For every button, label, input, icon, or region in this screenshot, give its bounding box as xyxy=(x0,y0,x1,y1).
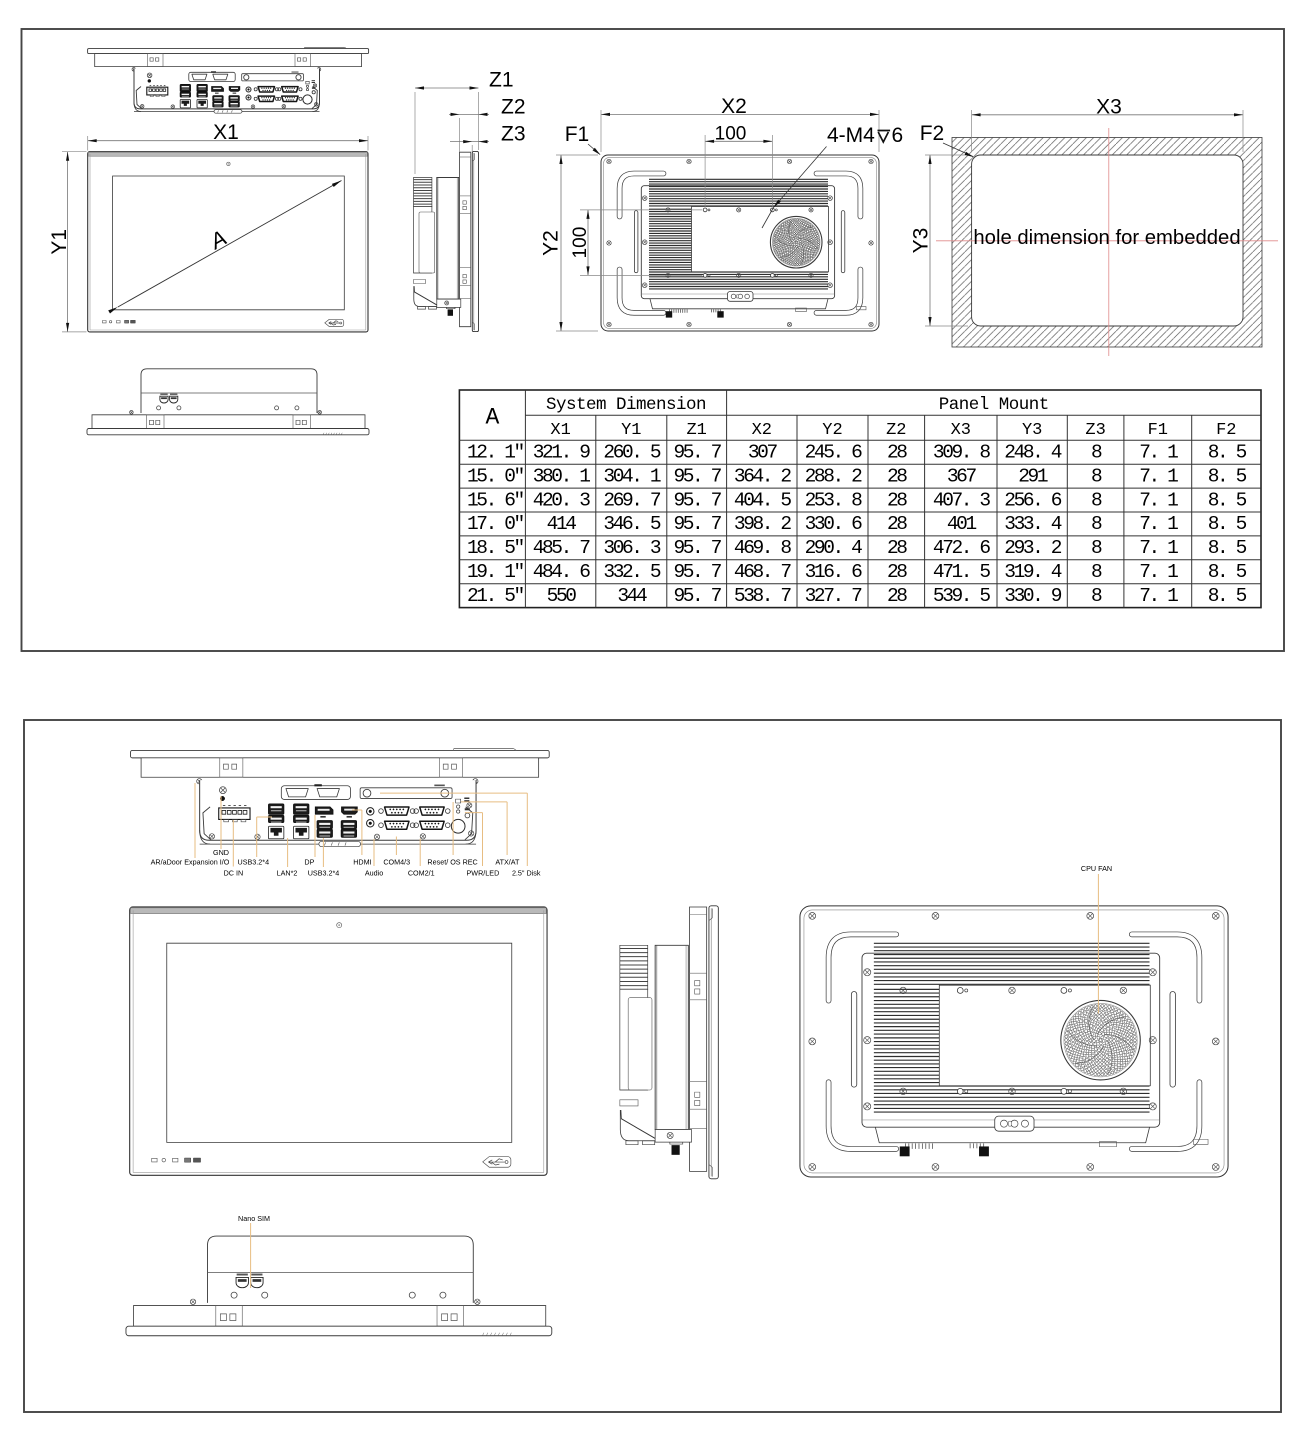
svg-text:256. 6: 256. 6 xyxy=(1004,489,1062,511)
svg-text:COM2/1: COM2/1 xyxy=(408,869,435,878)
svg-text:28: 28 xyxy=(887,489,907,511)
svg-text:28: 28 xyxy=(887,513,907,535)
svg-text:306. 3: 306. 3 xyxy=(603,537,661,559)
svg-text:Nano SIM: Nano SIM xyxy=(238,1214,270,1223)
svg-text:407. 3: 407. 3 xyxy=(933,489,991,511)
svg-text:319. 4: 319. 4 xyxy=(1004,561,1062,583)
svg-text:539. 5: 539. 5 xyxy=(933,585,991,607)
svg-text:15. 6": 15. 6" xyxy=(467,489,524,511)
svg-text:290. 4: 290. 4 xyxy=(805,537,863,559)
svg-text:344: 344 xyxy=(617,585,647,607)
svg-text:291: 291 xyxy=(1018,465,1048,487)
svg-text:Reset/ OS REC: Reset/ OS REC xyxy=(427,858,477,867)
svg-text:8. 5: 8. 5 xyxy=(1208,489,1247,511)
svg-text:304. 1: 304. 1 xyxy=(603,465,661,487)
svg-text:28: 28 xyxy=(887,585,907,607)
svg-text:7. 1: 7. 1 xyxy=(1139,442,1178,464)
svg-text:21. 5": 21. 5" xyxy=(467,585,524,607)
svg-text:307: 307 xyxy=(748,442,778,464)
svg-text:484. 6: 484. 6 xyxy=(533,561,591,583)
svg-text:260. 5: 260. 5 xyxy=(603,442,661,464)
svg-text:269. 7: 269. 7 xyxy=(603,489,661,511)
svg-text:380. 1: 380. 1 xyxy=(533,465,591,487)
svg-text:472. 6: 472. 6 xyxy=(933,537,991,559)
svg-text:6: 6 xyxy=(892,124,904,147)
svg-text:346. 5: 346. 5 xyxy=(603,513,661,535)
svg-text:7. 1: 7. 1 xyxy=(1139,561,1178,583)
svg-text:Panel Mount: Panel Mount xyxy=(939,395,1049,415)
svg-text:404. 5: 404. 5 xyxy=(734,489,792,511)
svg-text:ATX/AT: ATX/AT xyxy=(495,858,520,867)
svg-text:7. 1: 7. 1 xyxy=(1139,489,1178,511)
svg-text:2.5" Disk: 2.5" Disk xyxy=(512,869,541,878)
svg-text:95. 7: 95. 7 xyxy=(673,537,721,559)
svg-text:F1: F1 xyxy=(1148,421,1168,440)
svg-text:X2: X2 xyxy=(752,421,772,440)
svg-text:253. 8: 253. 8 xyxy=(805,489,863,511)
svg-text:100: 100 xyxy=(570,227,591,259)
svg-text:471. 5: 471. 5 xyxy=(933,561,991,583)
svg-text:hole dimension for embedded: hole dimension for embedded xyxy=(973,227,1240,249)
svg-text:F2: F2 xyxy=(1216,421,1236,440)
svg-text:8. 5: 8. 5 xyxy=(1208,585,1247,607)
svg-text:8. 5: 8. 5 xyxy=(1208,513,1247,535)
svg-text:Audio: Audio xyxy=(365,869,383,878)
svg-text:DP: DP xyxy=(304,858,314,867)
svg-text:367: 367 xyxy=(947,465,977,487)
svg-text:95. 7: 95. 7 xyxy=(673,585,721,607)
svg-text:95. 7: 95. 7 xyxy=(673,442,721,464)
svg-text:28: 28 xyxy=(887,465,907,487)
svg-text:PWR/LED: PWR/LED xyxy=(467,869,500,878)
svg-text:8. 5: 8. 5 xyxy=(1208,561,1247,583)
svg-text:Y3: Y3 xyxy=(1022,421,1042,440)
svg-text:USB3.2*4: USB3.2*4 xyxy=(308,869,340,878)
svg-text:Y1: Y1 xyxy=(621,421,641,440)
svg-text:19. 1": 19. 1" xyxy=(467,561,524,583)
svg-text:100: 100 xyxy=(715,124,747,145)
svg-text:469. 8: 469. 8 xyxy=(734,537,792,559)
svg-text:7. 1: 7. 1 xyxy=(1139,513,1178,535)
svg-text:364. 2: 364. 2 xyxy=(734,465,792,487)
svg-text:8. 5: 8. 5 xyxy=(1208,537,1247,559)
svg-text:Z3: Z3 xyxy=(1085,421,1105,440)
svg-text:327. 7: 327. 7 xyxy=(805,585,863,607)
svg-text:316. 6: 316. 6 xyxy=(805,561,863,583)
svg-text:Y3: Y3 xyxy=(910,228,933,254)
svg-text:420. 3: 420. 3 xyxy=(533,489,591,511)
svg-text:8. 5: 8. 5 xyxy=(1208,442,1247,464)
svg-text:248. 4: 248. 4 xyxy=(1004,442,1062,464)
svg-text:95. 7: 95. 7 xyxy=(673,465,721,487)
svg-text:4-M4: 4-M4 xyxy=(827,124,875,147)
svg-text:HDMI: HDMI xyxy=(353,858,371,867)
svg-text:18. 5": 18. 5" xyxy=(467,537,524,559)
svg-text:8. 5: 8. 5 xyxy=(1208,465,1247,487)
svg-text:333. 4: 333. 4 xyxy=(1004,513,1062,535)
svg-text:401: 401 xyxy=(947,513,977,535)
svg-text:15. 0": 15. 0" xyxy=(467,465,524,487)
svg-text:X3: X3 xyxy=(1096,95,1122,118)
svg-text:CPU FAN: CPU FAN xyxy=(1081,864,1112,873)
svg-text:DC IN: DC IN xyxy=(224,869,244,878)
svg-text:293. 2: 293. 2 xyxy=(1004,537,1062,559)
svg-text:245. 6: 245. 6 xyxy=(805,442,863,464)
svg-text:330. 6: 330. 6 xyxy=(805,513,863,535)
svg-text:X2: X2 xyxy=(721,95,747,118)
svg-text:95. 7: 95. 7 xyxy=(673,489,721,511)
svg-text:GND: GND xyxy=(213,848,229,857)
svg-text:28: 28 xyxy=(887,561,907,583)
svg-text:Z1: Z1 xyxy=(489,69,514,92)
svg-text:AR/aDoor Expansion I/O: AR/aDoor Expansion I/O xyxy=(151,858,230,867)
svg-text:A: A xyxy=(485,405,499,431)
svg-text:7. 1: 7. 1 xyxy=(1139,465,1178,487)
svg-text:7. 1: 7. 1 xyxy=(1139,537,1178,559)
svg-text:288. 2: 288. 2 xyxy=(805,465,863,487)
svg-text:330. 9: 330. 9 xyxy=(1004,585,1062,607)
svg-text:X3: X3 xyxy=(951,421,971,440)
svg-text:F1: F1 xyxy=(565,123,590,146)
svg-text:F2: F2 xyxy=(920,122,945,145)
svg-text:538. 7: 538. 7 xyxy=(734,585,792,607)
svg-text:7. 1: 7. 1 xyxy=(1139,585,1178,607)
svg-text:309. 8: 309. 8 xyxy=(933,442,991,464)
svg-text:Y2: Y2 xyxy=(540,230,563,256)
svg-text:Z2: Z2 xyxy=(886,421,906,440)
svg-text:95. 7: 95. 7 xyxy=(673,513,721,535)
svg-text:28: 28 xyxy=(887,537,907,559)
svg-text:Z1: Z1 xyxy=(686,421,706,440)
svg-text:USB3.2*4: USB3.2*4 xyxy=(238,858,270,867)
svg-text:Y1: Y1 xyxy=(48,229,71,255)
svg-text:Z2: Z2 xyxy=(501,96,526,119)
svg-text:X1: X1 xyxy=(213,121,239,144)
svg-text:332. 5: 332. 5 xyxy=(603,561,661,583)
svg-text:485. 7: 485. 7 xyxy=(533,537,591,559)
svg-text:28: 28 xyxy=(887,442,907,464)
svg-text:X1: X1 xyxy=(550,421,570,440)
svg-text:System Dimension: System Dimension xyxy=(546,395,706,415)
svg-text:95. 7: 95. 7 xyxy=(673,561,721,583)
svg-text:321. 9: 321. 9 xyxy=(533,442,591,464)
svg-text:COM4/3: COM4/3 xyxy=(383,858,410,867)
svg-text:17. 0": 17. 0" xyxy=(467,513,524,535)
svg-text:12. 1": 12. 1" xyxy=(467,442,524,464)
svg-text:468. 7: 468. 7 xyxy=(734,561,792,583)
svg-text:398. 2: 398. 2 xyxy=(734,513,792,535)
svg-text:LAN*2: LAN*2 xyxy=(277,869,298,878)
svg-text:414: 414 xyxy=(547,513,577,535)
svg-text:Y2: Y2 xyxy=(822,421,842,440)
svg-text:550: 550 xyxy=(547,585,577,607)
svg-text:Z3: Z3 xyxy=(501,123,526,146)
